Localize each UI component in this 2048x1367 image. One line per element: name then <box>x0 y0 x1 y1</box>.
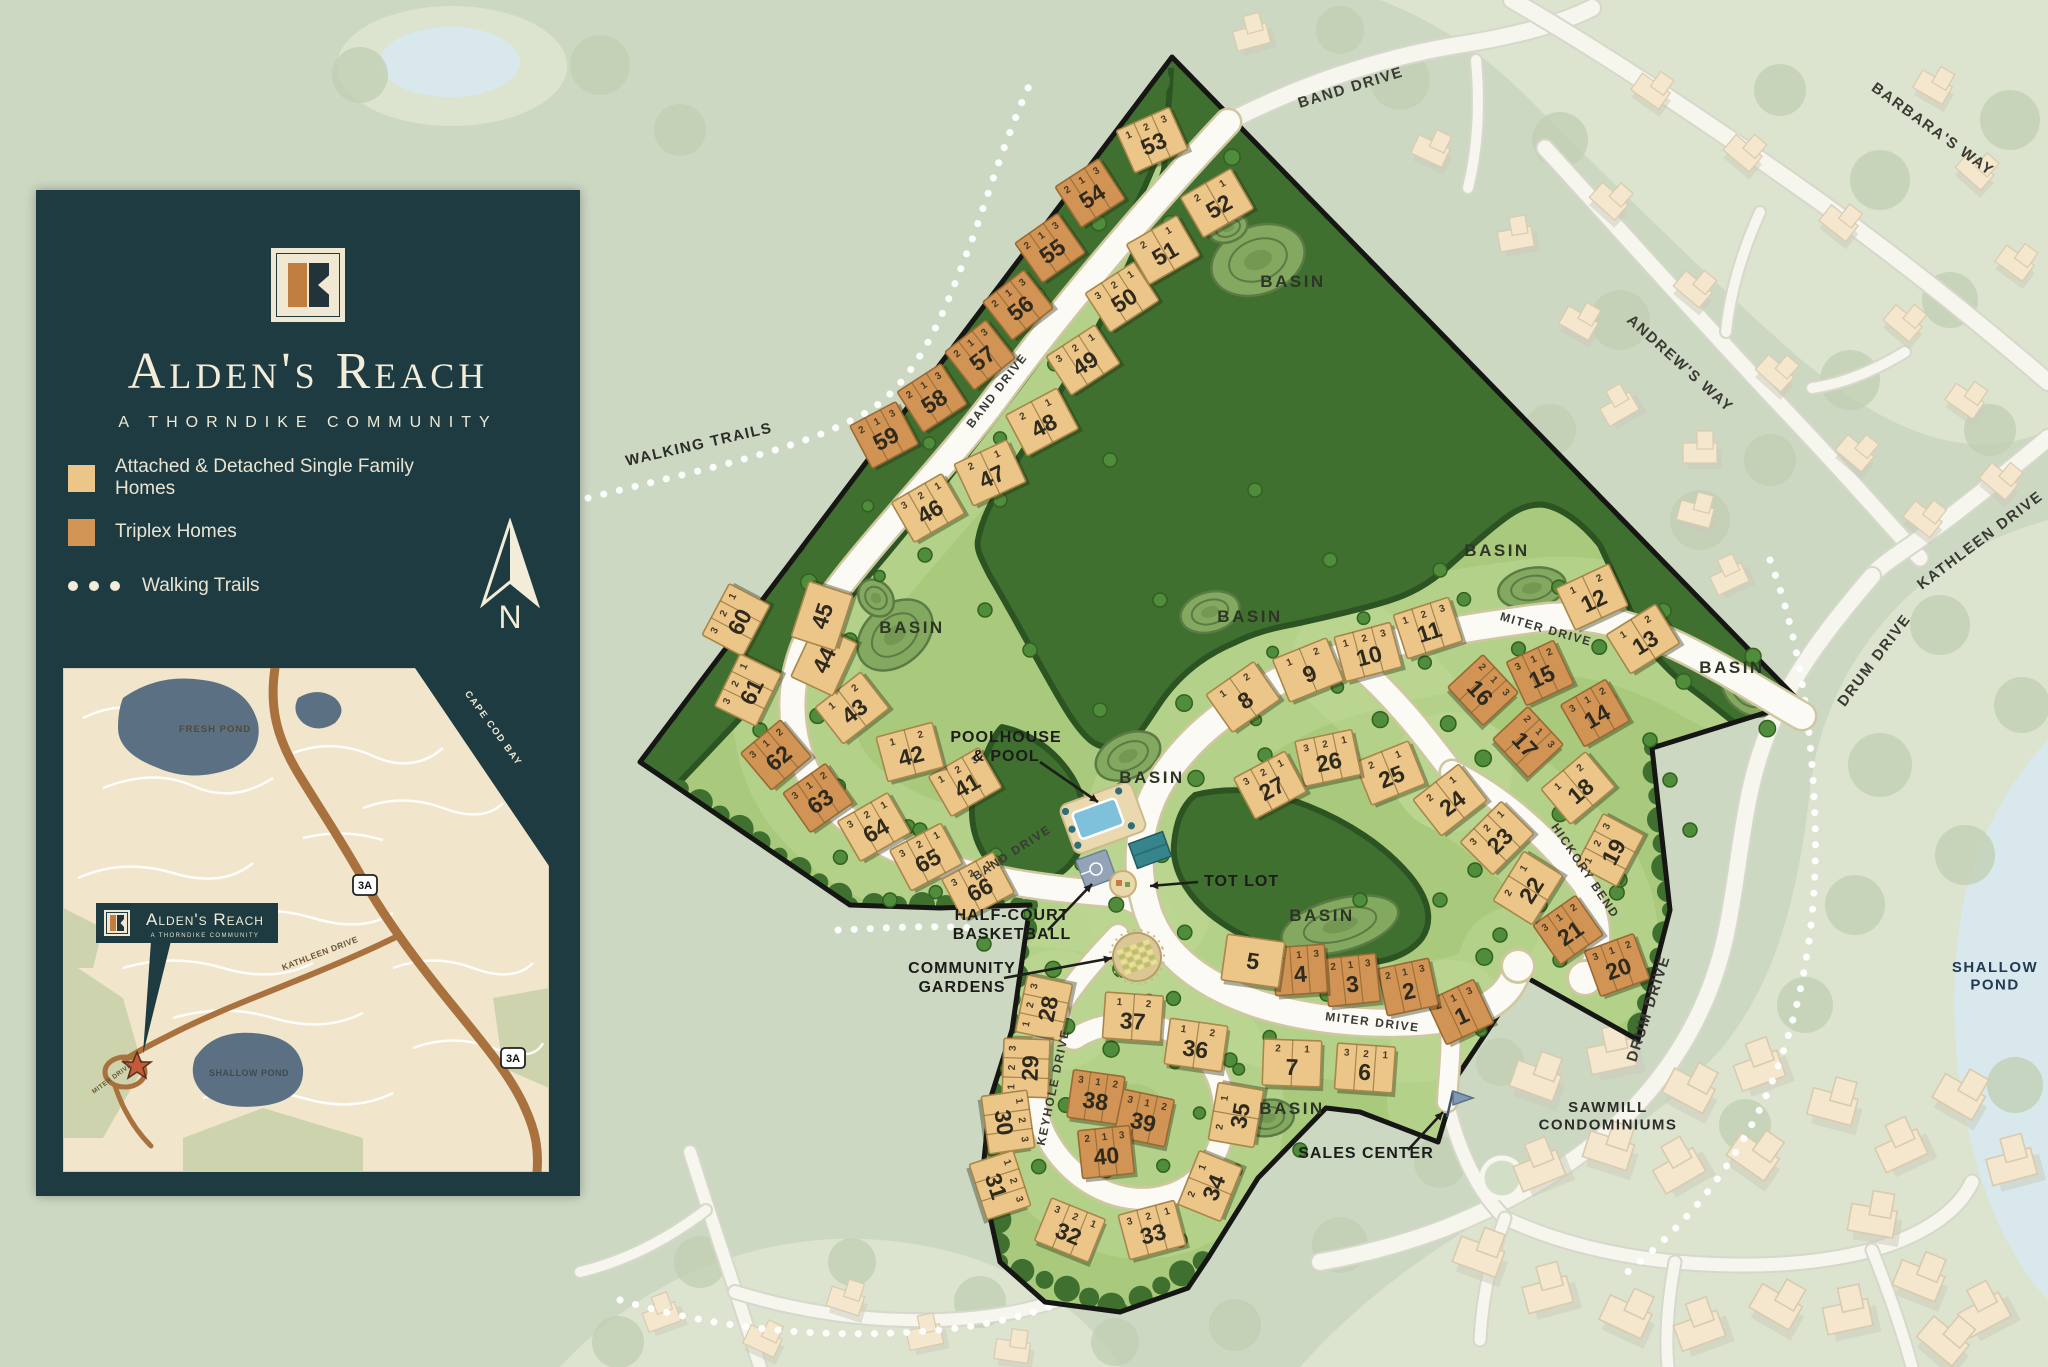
svg-text:1: 1 <box>1006 1083 1017 1089</box>
lot-37: 1237 <box>1102 992 1166 1046</box>
callout-title: Alden's Reach <box>146 910 264 929</box>
lot-36: 1236 <box>1164 1018 1231 1076</box>
brand-logo-icon <box>271 248 345 322</box>
tree-icon <box>1643 733 1657 747</box>
lot-5: 5 <box>1221 934 1288 992</box>
amenity-label: COMMUNITYGARDENS <box>908 960 1016 996</box>
tree-icon <box>1178 925 1192 939</box>
lot-number-37: 37 <box>1119 1007 1146 1035</box>
tree-icon <box>1167 991 1181 1005</box>
lot-30: 12330 <box>977 1090 1035 1157</box>
svg-text:3A: 3A <box>506 1053 520 1065</box>
lot-number-36: 36 <box>1181 1034 1210 1063</box>
basin-label: BASIN <box>1259 1099 1324 1118</box>
tree-icon <box>1109 897 1124 912</box>
tree-icon <box>874 570 885 581</box>
lot-number-40: 40 <box>1092 1142 1120 1171</box>
community-title: Alden's Reach <box>36 342 580 401</box>
lot-number-7: 7 <box>1285 1054 1299 1080</box>
inset-map-canvas: 3A3AAlden's ReachA THORNDIKE COMMUNITYFR… <box>63 668 549 1172</box>
fresh-pond-label: FRESH POND <box>179 724 251 735</box>
lot-number-4: 4 <box>1293 961 1308 988</box>
lot-number-35: 35 <box>1225 1101 1255 1131</box>
amenity-label: SALES CENTER <box>1298 1145 1434 1162</box>
tree-icon <box>1032 1160 1046 1174</box>
tree-icon <box>1188 770 1204 786</box>
basin-label: BASIN <box>1699 658 1764 677</box>
legend-item-triplex: Triplex Homes <box>68 512 468 552</box>
triplex-swatch <box>68 519 95 546</box>
tree-icon <box>1759 720 1775 736</box>
walking-trails-swatch <box>68 581 128 591</box>
tree-icon <box>1592 640 1607 655</box>
locator-inset-map: 3A3AAlden's ReachA THORNDIKE COMMUNITYFR… <box>63 668 549 1172</box>
svg-text:1: 1 <box>1304 1044 1310 1055</box>
site-map-screenshot: 2131213221332134532162171281291231012311… <box>0 0 2048 1367</box>
community-subtitle: A THORNDIKE COMMUNITY <box>36 414 580 432</box>
legend-item-walking-trails: Walking Trails <box>68 566 468 606</box>
tree-icon <box>1267 646 1279 658</box>
tree-icon <box>883 893 897 907</box>
amenity-label: TOT LOT <box>1204 873 1279 890</box>
svg-text:3: 3 <box>1008 1045 1019 1051</box>
tree-icon <box>1103 453 1117 467</box>
tree-icon <box>1157 1159 1170 1172</box>
tree-icon <box>833 850 847 864</box>
tree-icon <box>1353 893 1367 907</box>
north-label: N <box>498 599 521 630</box>
tree-icon <box>1457 593 1470 606</box>
map-legend: Attached & Detached Single Family Homes … <box>68 458 468 620</box>
svg-text:3A: 3A <box>358 880 372 892</box>
tree-icon <box>1683 823 1697 837</box>
tree-icon <box>1441 716 1456 731</box>
tree-icon <box>1023 643 1037 657</box>
basin-label: BASIN <box>1217 607 1282 626</box>
svg-text:2: 2 <box>1275 1043 1281 1054</box>
basin-label: BASIN <box>1464 541 1529 560</box>
tree-icon <box>1176 695 1192 711</box>
tree-icon <box>1093 703 1107 717</box>
tot-lot-icon <box>1110 871 1136 897</box>
lot-number-29: 29 <box>1017 1055 1044 1081</box>
tree-icon <box>1475 750 1491 766</box>
lot-3: 2133 <box>1324 953 1384 1010</box>
north-arrow-icon: N <box>474 518 546 630</box>
lot-7: 217 <box>1262 1039 1325 1091</box>
basin-label: BASIN <box>1260 272 1325 291</box>
lot-6: 3216 <box>1334 1043 1398 1097</box>
tree-icon <box>1323 553 1337 567</box>
lot-number-26: 26 <box>1314 747 1344 778</box>
tree-icon <box>1476 949 1493 966</box>
tree-icon <box>978 603 992 617</box>
tree-icon <box>1433 563 1447 577</box>
inset-callout: Alden's ReachA THORNDIKE COMMUNITY <box>96 903 278 943</box>
tree-icon <box>1248 483 1262 497</box>
callout-subtitle: A THORNDIKE COMMUNITY <box>151 933 260 939</box>
tree-icon <box>1103 1041 1119 1057</box>
tree-icon <box>923 437 935 449</box>
basin-label: BASIN <box>1119 768 1184 787</box>
tree-icon <box>929 886 942 899</box>
tree-icon <box>918 548 932 562</box>
tree-icon <box>1372 712 1388 728</box>
tree-icon <box>1663 773 1677 787</box>
tree-icon <box>1193 1107 1205 1119</box>
tree-icon <box>1153 593 1167 607</box>
lot-number-3: 3 <box>1345 970 1360 997</box>
route-3a-badge: 3A <box>501 1048 525 1068</box>
single-family-swatch <box>68 465 95 492</box>
lot-number-38: 38 <box>1081 1086 1110 1115</box>
tree-icon <box>1433 893 1447 907</box>
lot-number-30: 30 <box>989 1108 1018 1137</box>
amenity-label: HALF-COURTBASKETBALL <box>953 907 1071 943</box>
legend-panel: Alden's Reach A THORNDIKE COMMUNITY Atta… <box>36 190 580 1196</box>
route-3a-badge: 3A <box>353 875 377 895</box>
lot-number-6: 6 <box>1357 1059 1372 1086</box>
tree-icon <box>862 500 874 512</box>
basin-label: BASIN <box>1289 906 1354 925</box>
tree-icon <box>1468 863 1482 877</box>
tree-icon <box>1676 674 1691 689</box>
legend-item-single-family: Attached & Detached Single Family Homes <box>68 458 468 498</box>
lot-40: 21340 <box>1078 1125 1138 1182</box>
tree-icon <box>1493 928 1507 942</box>
tree-icon <box>1357 612 1369 624</box>
tree-icon <box>1224 149 1240 165</box>
basin-label: BASIN <box>879 618 944 637</box>
shallow-pond-label: SHALLOW POND <box>209 1068 289 1078</box>
